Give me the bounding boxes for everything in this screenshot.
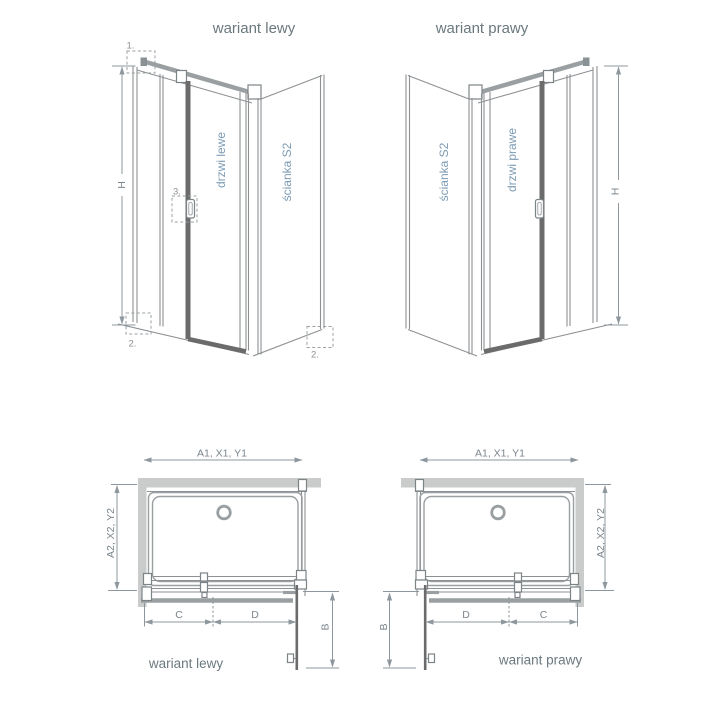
shower-enclosure-diagram: wariant lewy H drzwi lewe ścianka S2 1. … xyxy=(0,0,720,720)
right-extension-dim-label: B xyxy=(378,623,390,630)
left-door-label: drzwi lewe xyxy=(214,132,228,188)
callout-box-bottom-right xyxy=(307,327,333,348)
right-wall-label: ścianka S2 xyxy=(437,142,451,201)
callout-2b-label: 2. xyxy=(311,350,319,361)
left-fixed-segment-label: C xyxy=(175,609,183,621)
right-plan-caption: wariant prawy xyxy=(498,653,583,668)
left-extension-dim-label: B xyxy=(320,623,332,630)
callout-3-label: 3. xyxy=(173,187,181,198)
left-variant-3d-geometry xyxy=(118,58,324,357)
left-variant-callouts xyxy=(126,51,333,348)
right-variant-3d-geometry xyxy=(406,58,612,357)
left-width-dim-label: A1, X1, Y1 xyxy=(197,448,247,460)
right-fixed-segment-label: C xyxy=(540,609,548,621)
callout-2-label: 2. xyxy=(129,339,137,350)
right-depth-dim-label: A2, X2, Y2 xyxy=(595,508,607,558)
right-door-segment-label: D xyxy=(462,609,470,621)
diagram-canvas: wariant lewy H drzwi lewe ścianka S2 1. … xyxy=(0,0,720,720)
left-wall-label: ścianka S2 xyxy=(280,142,294,201)
left-variant-title: wariant lewy xyxy=(212,20,296,37)
callout-1-label: 1. xyxy=(127,41,135,52)
left-height-dim-label: H xyxy=(116,181,128,189)
right-width-dim-label: A1, X1, Y1 xyxy=(475,448,525,460)
right-height-dim-label: H xyxy=(610,188,622,196)
right-door-label: drzwi prawe xyxy=(505,128,519,192)
left-plan-caption: wariant lewy xyxy=(148,656,224,671)
left-variant-height-dimension xyxy=(112,66,136,325)
left-variant-plan-geometry xyxy=(108,457,339,670)
right-variant-title: wariant prawy xyxy=(435,20,529,37)
right-variant-plan-geometry xyxy=(383,457,614,670)
left-depth-dim-label: A2, X2, Y2 xyxy=(105,508,117,558)
left-door-segment-label: D xyxy=(251,609,259,621)
